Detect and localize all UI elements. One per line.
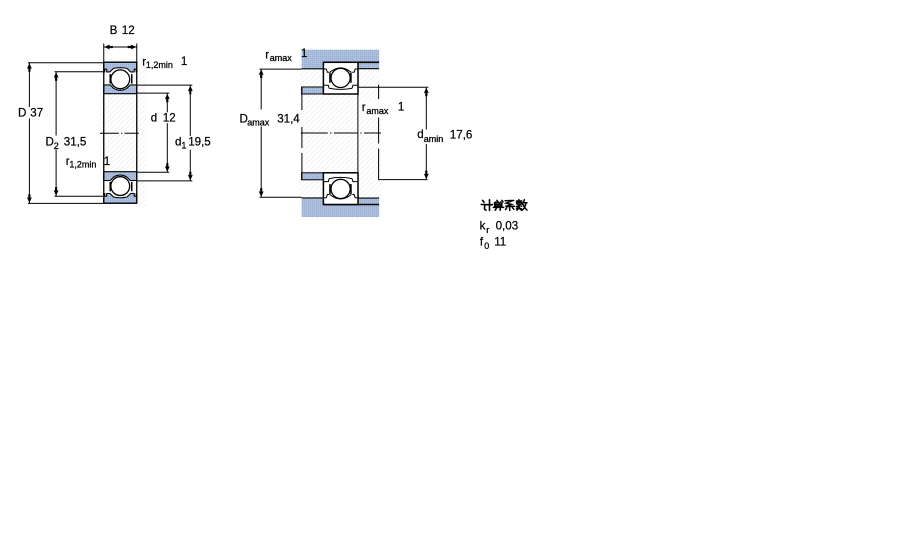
svg-text:12: 12 [122, 24, 135, 37]
svg-text:r: r [362, 101, 366, 114]
svg-text:11: 11 [494, 236, 506, 249]
svg-text:0,03: 0,03 [496, 220, 519, 233]
svg-text:1: 1 [398, 100, 404, 113]
svg-text:amin: amin [424, 134, 444, 144]
svg-text:k: k [480, 220, 486, 233]
svg-text:D: D [46, 136, 54, 149]
svg-text:amax: amax [270, 53, 293, 63]
svg-text:1,2min: 1,2min [69, 160, 96, 170]
svg-text:19,5: 19,5 [188, 135, 211, 148]
svg-text:D: D [18, 106, 26, 119]
svg-text:B: B [110, 24, 118, 37]
svg-text:12: 12 [163, 112, 176, 125]
svg-text:d: d [151, 112, 157, 125]
svg-text:1,2min: 1,2min [146, 60, 173, 70]
svg-text:1: 1 [181, 55, 187, 68]
svg-text:17,6: 17,6 [450, 128, 473, 141]
svg-text:1: 1 [181, 141, 186, 151]
svg-text:r: r [486, 225, 489, 235]
svg-text:1: 1 [301, 47, 307, 60]
svg-text:amax: amax [247, 117, 270, 127]
svg-text:2: 2 [54, 141, 59, 151]
svg-text:31,5: 31,5 [64, 136, 87, 149]
svg-text:amax: amax [366, 106, 389, 116]
svg-text:r: r [265, 48, 269, 61]
svg-text:d: d [417, 128, 423, 141]
svg-text:0: 0 [484, 241, 489, 251]
svg-text:31,4: 31,4 [277, 112, 300, 125]
svg-text:1: 1 [104, 155, 110, 168]
svg-text:37: 37 [30, 106, 43, 119]
